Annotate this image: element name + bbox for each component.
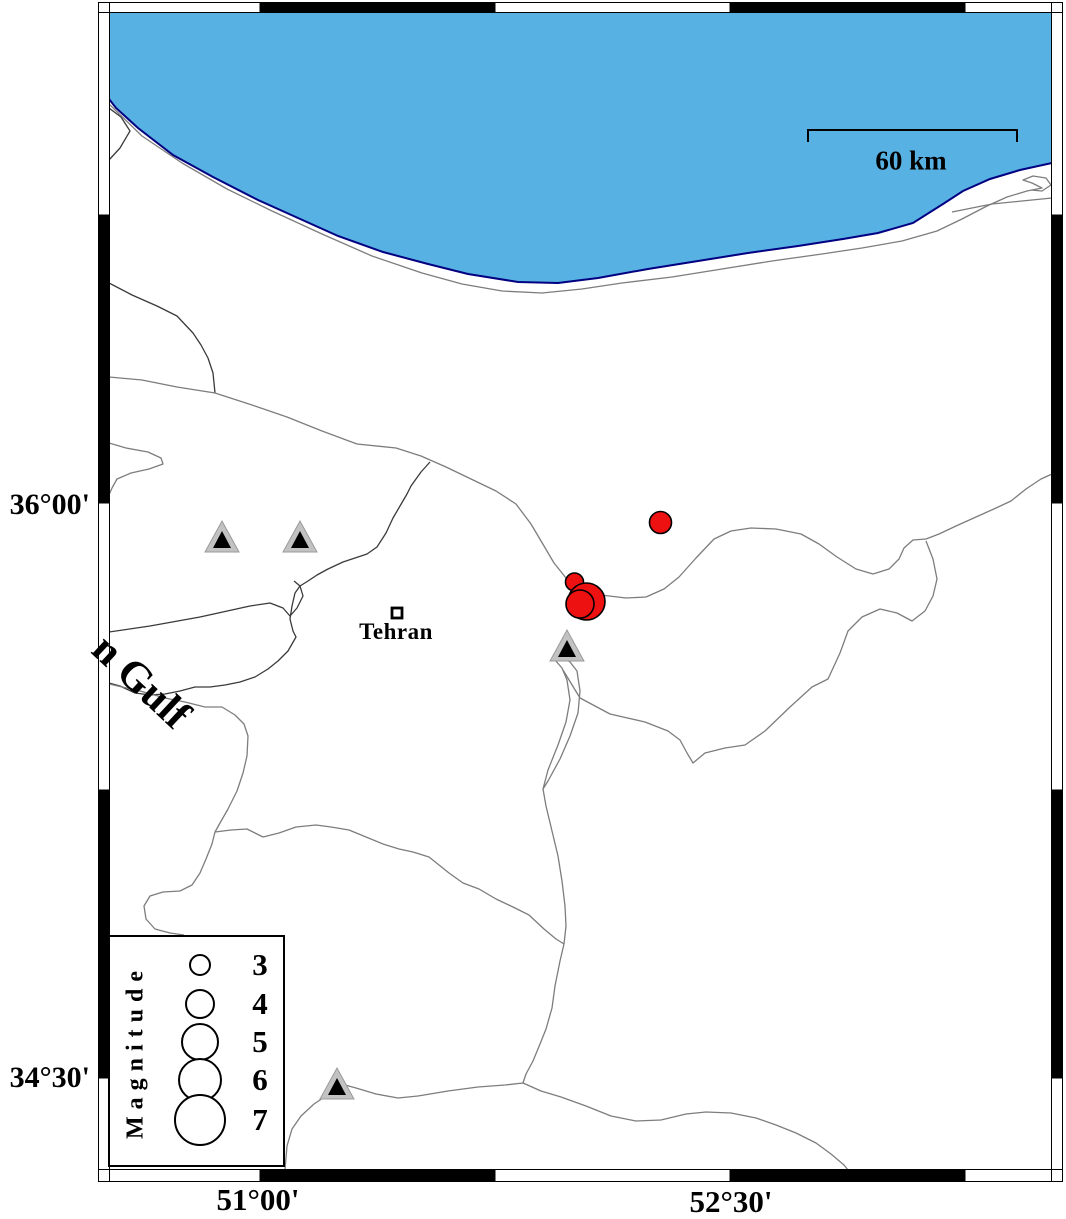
magnitude-4-circle	[185, 989, 215, 1019]
magnitude-4-label: 4	[252, 986, 268, 1022]
earthquake-marker	[566, 590, 594, 618]
frame-segment	[730, 1170, 965, 1181]
magnitude-5-circle	[181, 1023, 219, 1061]
road-line	[285, 1083, 523, 1170]
lon-label-52-30: 52°30'	[689, 1186, 772, 1217]
scale-bar-label: 60 km	[875, 146, 946, 177]
magnitude-6-label: 6	[252, 1062, 268, 1098]
frame-segment	[730, 3, 965, 13]
boundary-line	[109, 462, 430, 695]
city-marker-tehran	[392, 608, 402, 618]
road-line	[952, 198, 1052, 212]
earthquake-marker	[650, 512, 672, 534]
road-line	[543, 657, 580, 789]
road-line	[109, 443, 163, 495]
frame-segment	[99, 215, 109, 503]
magnitude-3-circle	[189, 954, 211, 976]
road-line	[523, 1083, 848, 1170]
road-line	[109, 377, 1052, 598]
road-line	[523, 789, 566, 1083]
road-line	[563, 541, 937, 763]
road-line	[215, 825, 564, 944]
frame-segment	[1052, 790, 1062, 1078]
lat-label-36-00: 36°00'	[0, 490, 90, 520]
magnitude-7-circle	[174, 1094, 226, 1146]
frame-segment	[260, 1170, 495, 1181]
lat-label-34-30: 34°30'	[0, 1063, 90, 1093]
lon-label-51-00: 51°00'	[216, 1184, 299, 1215]
city-label-tehran: Tehran	[359, 619, 433, 645]
frame-segment	[1052, 215, 1062, 503]
magnitude-legend: Magnitude 3 4 5 6 7	[108, 935, 285, 1167]
frame-segment	[260, 3, 495, 13]
legend-title: Magnitude	[120, 943, 152, 1159]
magnitude-3-label: 3	[252, 947, 268, 983]
magnitude-5-label: 5	[252, 1024, 268, 1060]
boundary-line	[109, 283, 215, 393]
magnitude-7-label: 7	[252, 1102, 268, 1138]
boundary-line	[109, 581, 303, 632]
seismicity-map: 36°00' 34°30' 51°00' 52°30' 60 km n Gulf…	[0, 0, 1066, 1219]
